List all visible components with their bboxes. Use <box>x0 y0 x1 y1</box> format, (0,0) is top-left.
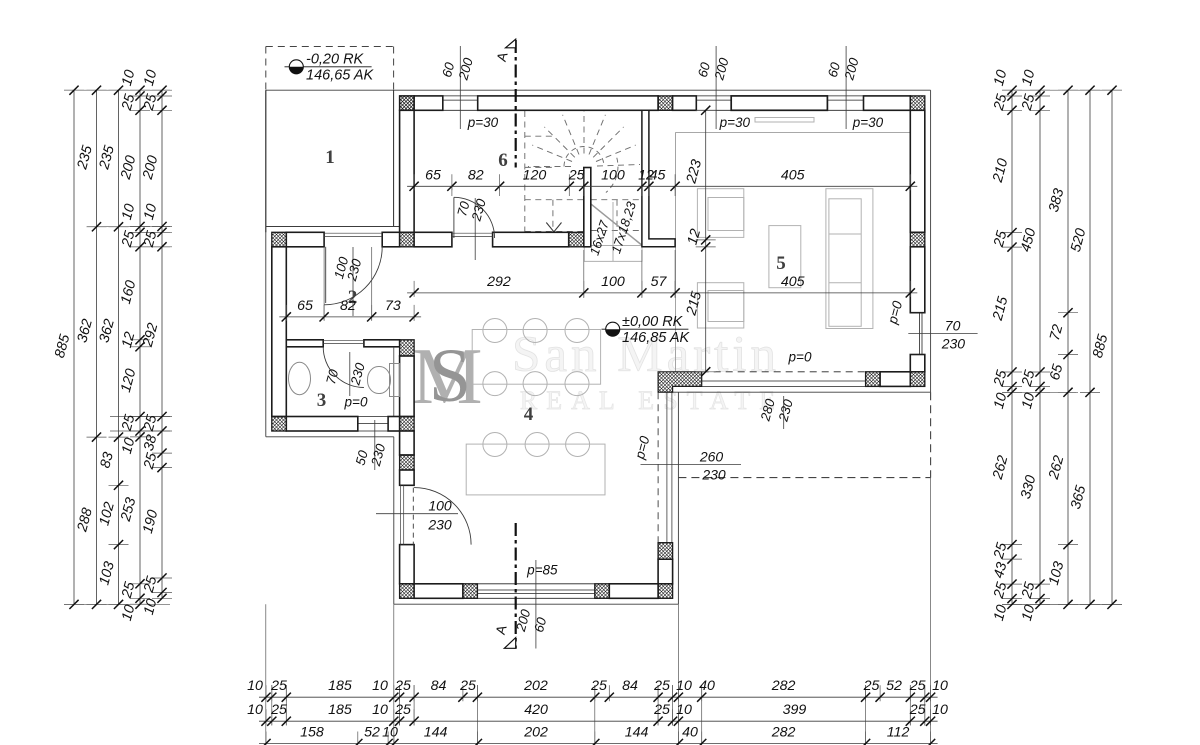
svg-text:REAL ESTATE: REAL ESTATE <box>520 386 784 415</box>
svg-text:282: 282 <box>771 678 796 694</box>
svg-text:202: 202 <box>523 725 548 741</box>
svg-text:202: 202 <box>523 678 548 694</box>
svg-text:146,85 AK: 146,85 AK <box>622 330 691 346</box>
svg-text:82: 82 <box>340 298 356 314</box>
svg-text:25: 25 <box>394 678 411 694</box>
svg-text:25: 25 <box>653 702 670 718</box>
svg-text:230: 230 <box>427 517 452 533</box>
svg-text:399: 399 <box>783 702 807 718</box>
svg-text:p=0: p=0 <box>344 395 368 410</box>
svg-text:10: 10 <box>372 678 388 694</box>
svg-text:84: 84 <box>431 678 447 694</box>
svg-text:282: 282 <box>771 725 796 741</box>
svg-text:146,65 AK: 146,65 AK <box>306 68 375 84</box>
svg-text:10: 10 <box>932 678 948 694</box>
svg-text:230: 230 <box>941 336 966 352</box>
svg-text:25: 25 <box>909 702 926 718</box>
svg-text:82: 82 <box>468 168 484 184</box>
svg-text:25: 25 <box>863 678 880 694</box>
svg-text:25: 25 <box>590 678 607 694</box>
svg-text:45: 45 <box>650 168 666 184</box>
svg-text:±0,00 RK: ±0,00 RK <box>622 314 684 330</box>
svg-text:84: 84 <box>622 678 638 694</box>
svg-text:3: 3 <box>317 390 327 411</box>
svg-text:10: 10 <box>382 725 398 741</box>
svg-text:10: 10 <box>372 702 388 718</box>
svg-text:25: 25 <box>568 168 585 184</box>
svg-text:230: 230 <box>701 467 726 483</box>
svg-text:100: 100 <box>601 274 625 290</box>
svg-text:52: 52 <box>364 725 380 741</box>
svg-text:100: 100 <box>428 498 452 514</box>
svg-text:40: 40 <box>682 725 698 741</box>
svg-text:p=85: p=85 <box>526 563 558 578</box>
svg-text:73: 73 <box>385 298 401 314</box>
svg-text:65: 65 <box>425 168 441 184</box>
svg-text:25: 25 <box>653 678 670 694</box>
svg-text:40: 40 <box>699 678 715 694</box>
svg-text:260: 260 <box>699 449 724 465</box>
svg-text:405: 405 <box>781 168 805 184</box>
svg-text:120: 120 <box>523 168 547 184</box>
svg-text:57: 57 <box>651 274 668 290</box>
svg-text:185: 185 <box>328 678 352 694</box>
svg-text:112: 112 <box>887 725 910 741</box>
svg-text:4: 4 <box>524 404 534 425</box>
svg-text:-0,20 RK: -0,20 RK <box>306 52 365 68</box>
svg-text:10: 10 <box>676 702 692 718</box>
svg-text:144: 144 <box>625 725 649 741</box>
svg-text:p=30: p=30 <box>467 115 499 130</box>
svg-text:S: S <box>429 334 471 418</box>
svg-text:p=30: p=30 <box>719 115 751 130</box>
svg-text:25: 25 <box>459 678 476 694</box>
svg-text:144: 144 <box>424 725 448 741</box>
svg-text:10: 10 <box>932 702 948 718</box>
svg-text:25: 25 <box>909 678 926 694</box>
svg-text:100: 100 <box>601 168 625 184</box>
svg-text:1: 1 <box>325 147 335 168</box>
svg-text:65: 65 <box>297 298 313 314</box>
svg-text:p=30: p=30 <box>852 115 884 130</box>
svg-text:6: 6 <box>498 150 508 171</box>
svg-text:70: 70 <box>945 318 961 334</box>
svg-text:10: 10 <box>247 678 263 694</box>
svg-text:p=0: p=0 <box>788 350 812 365</box>
svg-text:185: 185 <box>328 702 352 718</box>
svg-text:25: 25 <box>270 702 287 718</box>
svg-text:292: 292 <box>486 274 511 290</box>
svg-text:420: 420 <box>524 702 548 718</box>
svg-text:25: 25 <box>394 702 411 718</box>
svg-text:158: 158 <box>300 725 324 741</box>
svg-text:10: 10 <box>247 702 263 718</box>
svg-text:5: 5 <box>776 253 786 274</box>
svg-text:405: 405 <box>781 274 805 290</box>
svg-text:52: 52 <box>886 678 902 694</box>
svg-text:10: 10 <box>676 678 692 694</box>
svg-text:25: 25 <box>270 678 287 694</box>
